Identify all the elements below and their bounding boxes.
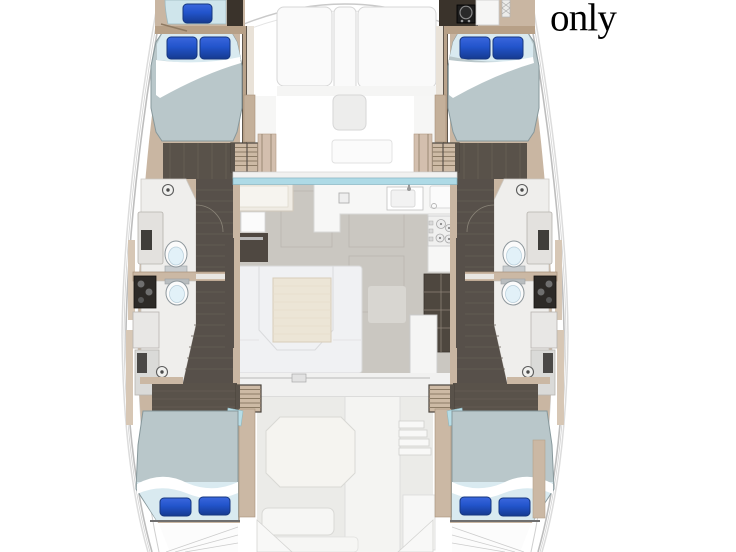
svg-text:only: only xyxy=(550,0,617,40)
